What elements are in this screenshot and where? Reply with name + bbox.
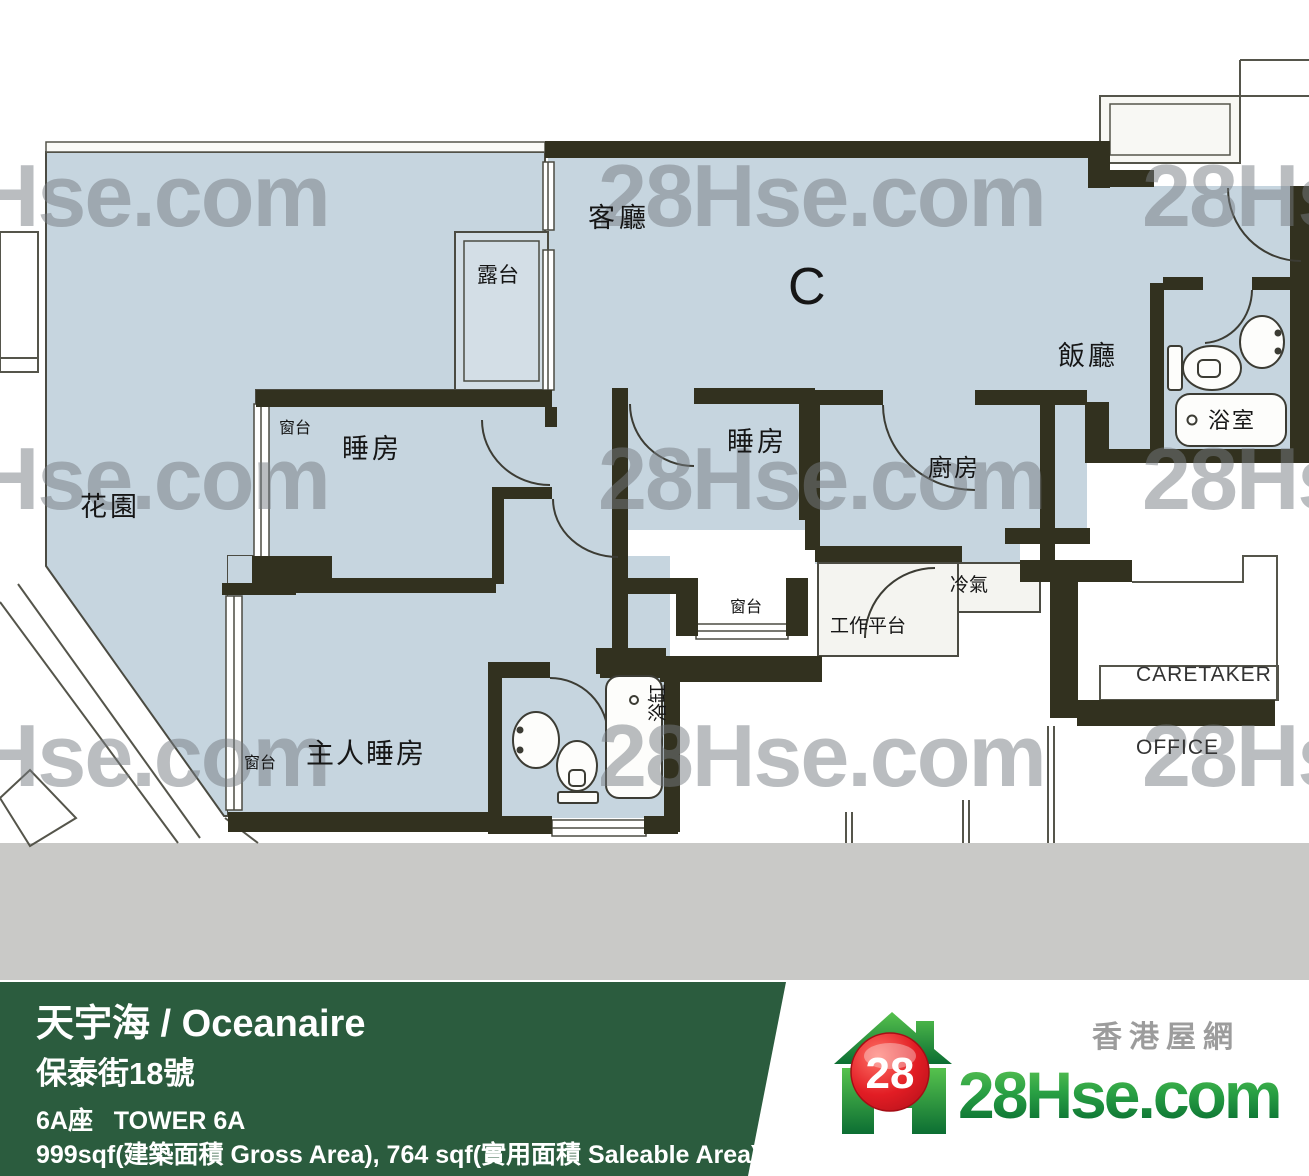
- tower-label: 6A座 TOWER 6A: [36, 1101, 245, 1137]
- badge-number: 28: [866, 1049, 915, 1098]
- label-balcony: 露台: [477, 264, 519, 288]
- floor-plan-page: 28Hse.com 28Hse.com 28Hse.com 28Hse.com …: [0, 0, 1309, 1176]
- site-name-chinese: 香港屋網: [1092, 1012, 1240, 1056]
- estate-title: 天宇海 / Oceanaire: [36, 992, 365, 1047]
- brand-wordmark: 28Hse.com: [958, 1062, 1280, 1128]
- label-master-bedroom: 主人睡房: [306, 738, 426, 770]
- master-sink-icon: [513, 712, 559, 768]
- label-bay-window-1: 窗台: [279, 420, 311, 438]
- sink-icon: [1240, 316, 1284, 368]
- label-bathroom: 浴室: [1208, 408, 1256, 433]
- estate-address: 保泰街18號: [36, 1048, 194, 1093]
- label-bedroom-1: 睡房: [342, 434, 402, 465]
- label-bedroom-2: 睡房: [727, 427, 787, 458]
- label-utility-platform: 工作平台: [830, 616, 906, 638]
- label-ac-platform: 冷氣: [950, 575, 988, 597]
- area-label: 999sqf(建築面積 Gross Area), 764 sqf(實用面積 Sa…: [36, 1135, 759, 1171]
- watermark: 28Hse.com: [0, 435, 329, 523]
- label-garden: 花園: [80, 492, 140, 523]
- watermark: 28Hse.com: [1142, 435, 1309, 523]
- label-unit-c: C: [788, 258, 826, 318]
- balcony-outline: [455, 232, 548, 390]
- caretaker-line1: CARETAKER: [1136, 663, 1272, 687]
- watermark: 28Hse.com: [598, 152, 1045, 240]
- toilet-tank-icon: [1168, 346, 1182, 390]
- watermark: 28Hse.com: [598, 712, 1045, 800]
- caretaker-line2: OFFICE: [1136, 736, 1272, 760]
- label-dining-room: 飯廳: [1058, 341, 1118, 372]
- watermark: 28Hse.com: [1142, 152, 1309, 240]
- label-caretaker-office: CARETAKER OFFICE: [1136, 615, 1272, 808]
- utility-platform-area: [818, 563, 958, 656]
- label-living-room: 客廳: [588, 203, 650, 234]
- label-bay-window-2: 窗台: [730, 599, 762, 617]
- watermark: 28Hse.com: [0, 712, 329, 800]
- label-master-bathtub: 浴缸: [648, 684, 670, 722]
- label-kitchen: 廚房: [928, 455, 980, 483]
- label-bay-window-master: 窗台: [244, 755, 276, 773]
- logo-house-icon: 28: [826, 1002, 966, 1142]
- watermark: 28Hse.com: [0, 152, 329, 240]
